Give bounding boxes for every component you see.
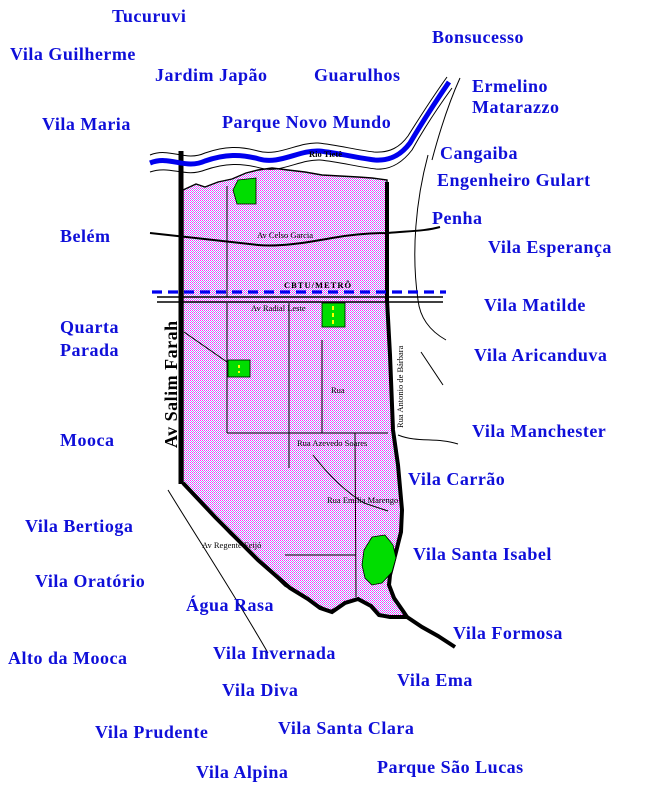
street-label-antonio-de-barbara: Rua Antonio de Bárbara: [395, 345, 405, 428]
neighborhood-label-vila-formosa: Vila Formosa: [453, 623, 563, 643]
neighborhood-label-cangaiba: Cangaiba: [440, 143, 518, 163]
neighborhood-label-matarazzo: Matarazzo: [472, 97, 559, 117]
neighborhood-label-vila-carrao: Vila Carrão: [408, 469, 505, 489]
neighborhood-label-bonsucesso: Bonsucesso: [432, 27, 524, 47]
street-label-radial-leste: Av Radial Leste: [251, 303, 306, 313]
street-label-rio-tiete: Rio Tietê: [309, 149, 342, 159]
neighborhood-label-parada: Parada: [60, 340, 119, 360]
neighborhood-label-vila-prudente: Vila Prudente: [95, 722, 208, 742]
street-label-rua: Rua: [331, 385, 345, 395]
neighborhood-label-mooca: Mooca: [60, 430, 114, 450]
street-label-salim-farah: Av Salim Farah: [161, 320, 181, 448]
neighborhood-label-parque-novo-mundo: Parque Novo Mundo: [222, 112, 391, 132]
neighborhood-label-engenheiro-gulart: Engenheiro Gulart: [437, 170, 591, 190]
neighborhood-label-guarulhos: Guarulhos: [314, 65, 401, 85]
neighborhood-label-quarta: Quarta: [60, 317, 119, 337]
neighborhood-label-vila-santa-clara: Vila Santa Clara: [278, 718, 414, 738]
neighborhood-label-vila-matilde: Vila Matilde: [484, 295, 586, 315]
neighborhood-label-ermelino: Ermelino: [472, 76, 548, 96]
neighborhood-label-vila-santa-isabel: Vila Santa Isabel: [413, 544, 552, 564]
street-label-regente-feijo: Av Regente Feijó: [202, 540, 261, 550]
neighborhood-label-belem: Belém: [60, 226, 110, 246]
neighborhood-label-vila-maria: Vila Maria: [42, 114, 131, 134]
neighborhood-label-agua-rasa: Água Rasa: [186, 594, 274, 615]
street-label-celso-garcia: Av Celso Garcia: [257, 230, 313, 240]
neighborhood-label-vila-oratorio: Vila Oratório: [35, 571, 145, 591]
east-boundary-line-3: [398, 435, 458, 444]
neighborhood-label-vila-aricanduva: Vila Aricanduva: [474, 345, 607, 365]
neighborhood-label-penha: Penha: [432, 208, 483, 228]
neighborhood-label-vila-ema: Vila Ema: [397, 670, 473, 690]
park-center-west: [228, 360, 250, 377]
neighborhood-label-vila-invernada: Vila Invernada: [213, 643, 336, 663]
neighborhood-label-parque-sao-lucas: Parque São Lucas: [377, 757, 524, 777]
street-label-emilia-marengo: Rua Emilia Marengo: [327, 495, 398, 505]
neighborhood-label-tucuruvi: Tucuruvi: [112, 6, 186, 26]
east-boundary-line-2: [421, 352, 443, 385]
neighborhood-label-vila-esperanca: Vila Esperança: [488, 237, 612, 257]
street-label-cbtu-metro: CBTU/METRÔ: [284, 280, 352, 290]
neighborhood-label-vila-manchester: Vila Manchester: [472, 421, 606, 441]
neighborhood-label-jardim-japao: Jardim Japão: [155, 65, 268, 85]
street-label-azevedo-soares: Rua Azevedo Soares: [297, 438, 367, 448]
neighborhood-label-alto-da-mooca: Alto da Mooca: [8, 648, 127, 668]
neighborhood-label-vila-bertioga: Vila Bertioga: [25, 516, 133, 536]
district-map: Rio Tietê Av Celso Garcia CBTU/METRÔ Av …: [0, 0, 665, 803]
neighborhood-label-vila-guilherme: Vila Guilherme: [10, 44, 136, 64]
neighborhood-label-vila-alpina: Vila Alpina: [196, 762, 288, 782]
neighborhood-label-vila-diva: Vila Diva: [222, 680, 298, 700]
